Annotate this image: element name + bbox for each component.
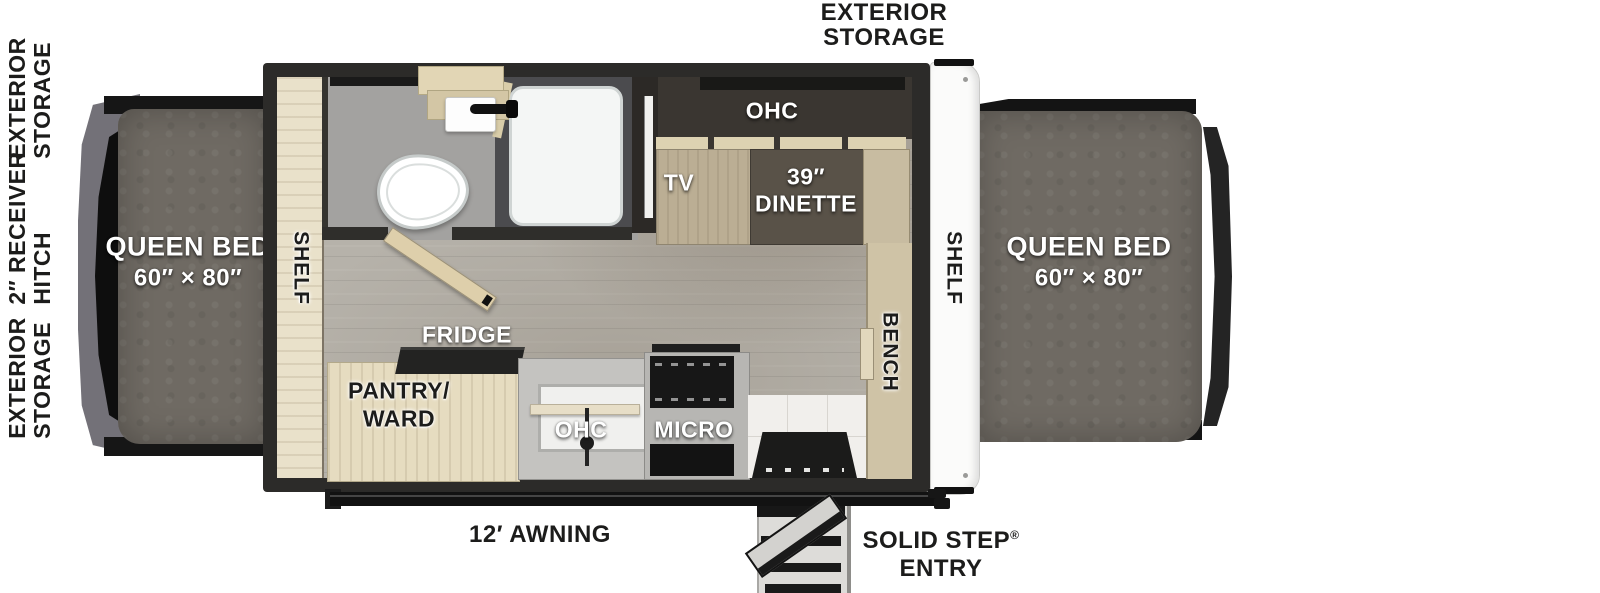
stove-handle <box>652 344 740 352</box>
label-line: EXTERIOR <box>821 0 948 25</box>
left-bed-label: QUEEN BED 60″ × 80″ <box>105 232 270 291</box>
label-exterior-storage-front: EXTERIOR STORAGE <box>5 37 55 159</box>
label-line: STORAGE <box>821 25 948 50</box>
shower-pan <box>509 86 623 226</box>
dinette-seat <box>863 149 910 245</box>
entry-label-line2: ENTRY <box>862 555 1019 583</box>
toilet-seat <box>384 160 462 222</box>
pantry-label-line1: PANTRY/ <box>348 379 450 404</box>
fridge-label: FRIDGE <box>422 323 512 348</box>
dinette-window <box>700 77 905 90</box>
ohc-divider <box>774 137 780 149</box>
label-line: STORAGE <box>30 317 55 439</box>
screw-dot <box>963 77 968 82</box>
furnace <box>752 432 857 478</box>
cooktop <box>650 356 734 408</box>
label-line: EXTERIOR <box>5 37 30 159</box>
awning-roll <box>330 492 936 506</box>
label-line: EXTERIOR <box>5 317 30 439</box>
label-exterior-storage-rear: EXTERIOR STORAGE <box>5 317 55 439</box>
label-line: HITCH <box>30 151 55 304</box>
dinette-ohc-label: OHC <box>746 99 799 124</box>
end-cap-trim-top <box>934 59 974 66</box>
label-line: 2″ RECEIVER <box>5 151 30 304</box>
label-line: STORAGE <box>30 37 55 159</box>
furnace-vents <box>766 468 844 472</box>
bench-armrest <box>860 328 874 380</box>
entry-label-line1: SOLID STEP® <box>862 521 1019 555</box>
awning-highlight <box>330 495 936 497</box>
ohc-divider <box>842 137 848 149</box>
oven <box>650 444 734 476</box>
bathroom-window <box>330 77 422 86</box>
entry-label: SOLID STEP® ENTRY <box>862 521 1019 583</box>
bed-size: 60″ × 80″ <box>105 266 270 292</box>
fridge-top <box>395 347 525 374</box>
bathroom-wall-left <box>322 227 388 240</box>
tv-cabinet <box>656 149 752 245</box>
floorplan-canvas: EXTERIOR STORAGE 2″ RECEIVER HITCH EXTER… <box>0 0 1600 593</box>
burner-grate <box>655 398 729 401</box>
right-bed-tent-flap <box>1203 127 1232 426</box>
registered-mark: ® <box>1010 528 1019 542</box>
bed-name: QUEEN BED <box>1006 232 1171 261</box>
label-receiver-hitch: 2″ RECEIVER HITCH <box>5 151 55 304</box>
bathroom-faucet-handle <box>506 100 518 118</box>
dinette-ohc-strip <box>656 137 906 149</box>
tv-screen <box>644 96 653 218</box>
entry-text: SOLID STEP <box>862 527 1010 554</box>
bed-size: 60″ × 80″ <box>1006 266 1171 292</box>
awning-bracket-upper <box>928 489 946 498</box>
right-bed-label: QUEEN BED 60″ × 80″ <box>1006 232 1171 291</box>
shelf-right-label: SHELF <box>942 231 965 305</box>
awning-bracket-lower <box>934 498 950 509</box>
bathroom-sink <box>445 97 496 132</box>
shelf-left-label: SHELF <box>289 231 312 305</box>
tv-label: TV <box>664 171 694 196</box>
door-handle <box>481 294 492 306</box>
bed-name: QUEEN BED <box>105 232 270 261</box>
step-tread <box>765 584 841 593</box>
ohc-divider <box>708 137 714 149</box>
screw-dot <box>963 473 968 478</box>
label-exterior-storage-top: EXTERIOR STORAGE <box>821 0 948 50</box>
burner-grate <box>655 363 729 366</box>
dinette-label: DINETTE <box>755 192 857 217</box>
pantry-label-line2: WARD <box>363 407 435 432</box>
micro-label: MICRO <box>654 418 733 443</box>
bench-label: BENCH <box>878 312 901 392</box>
kitchen-ohc-label: OHC <box>555 418 608 443</box>
dinette-size-label: 39″ <box>787 165 825 190</box>
bathroom-wall-right <box>452 227 632 240</box>
awning-label: 12′ AWNING <box>469 522 611 548</box>
